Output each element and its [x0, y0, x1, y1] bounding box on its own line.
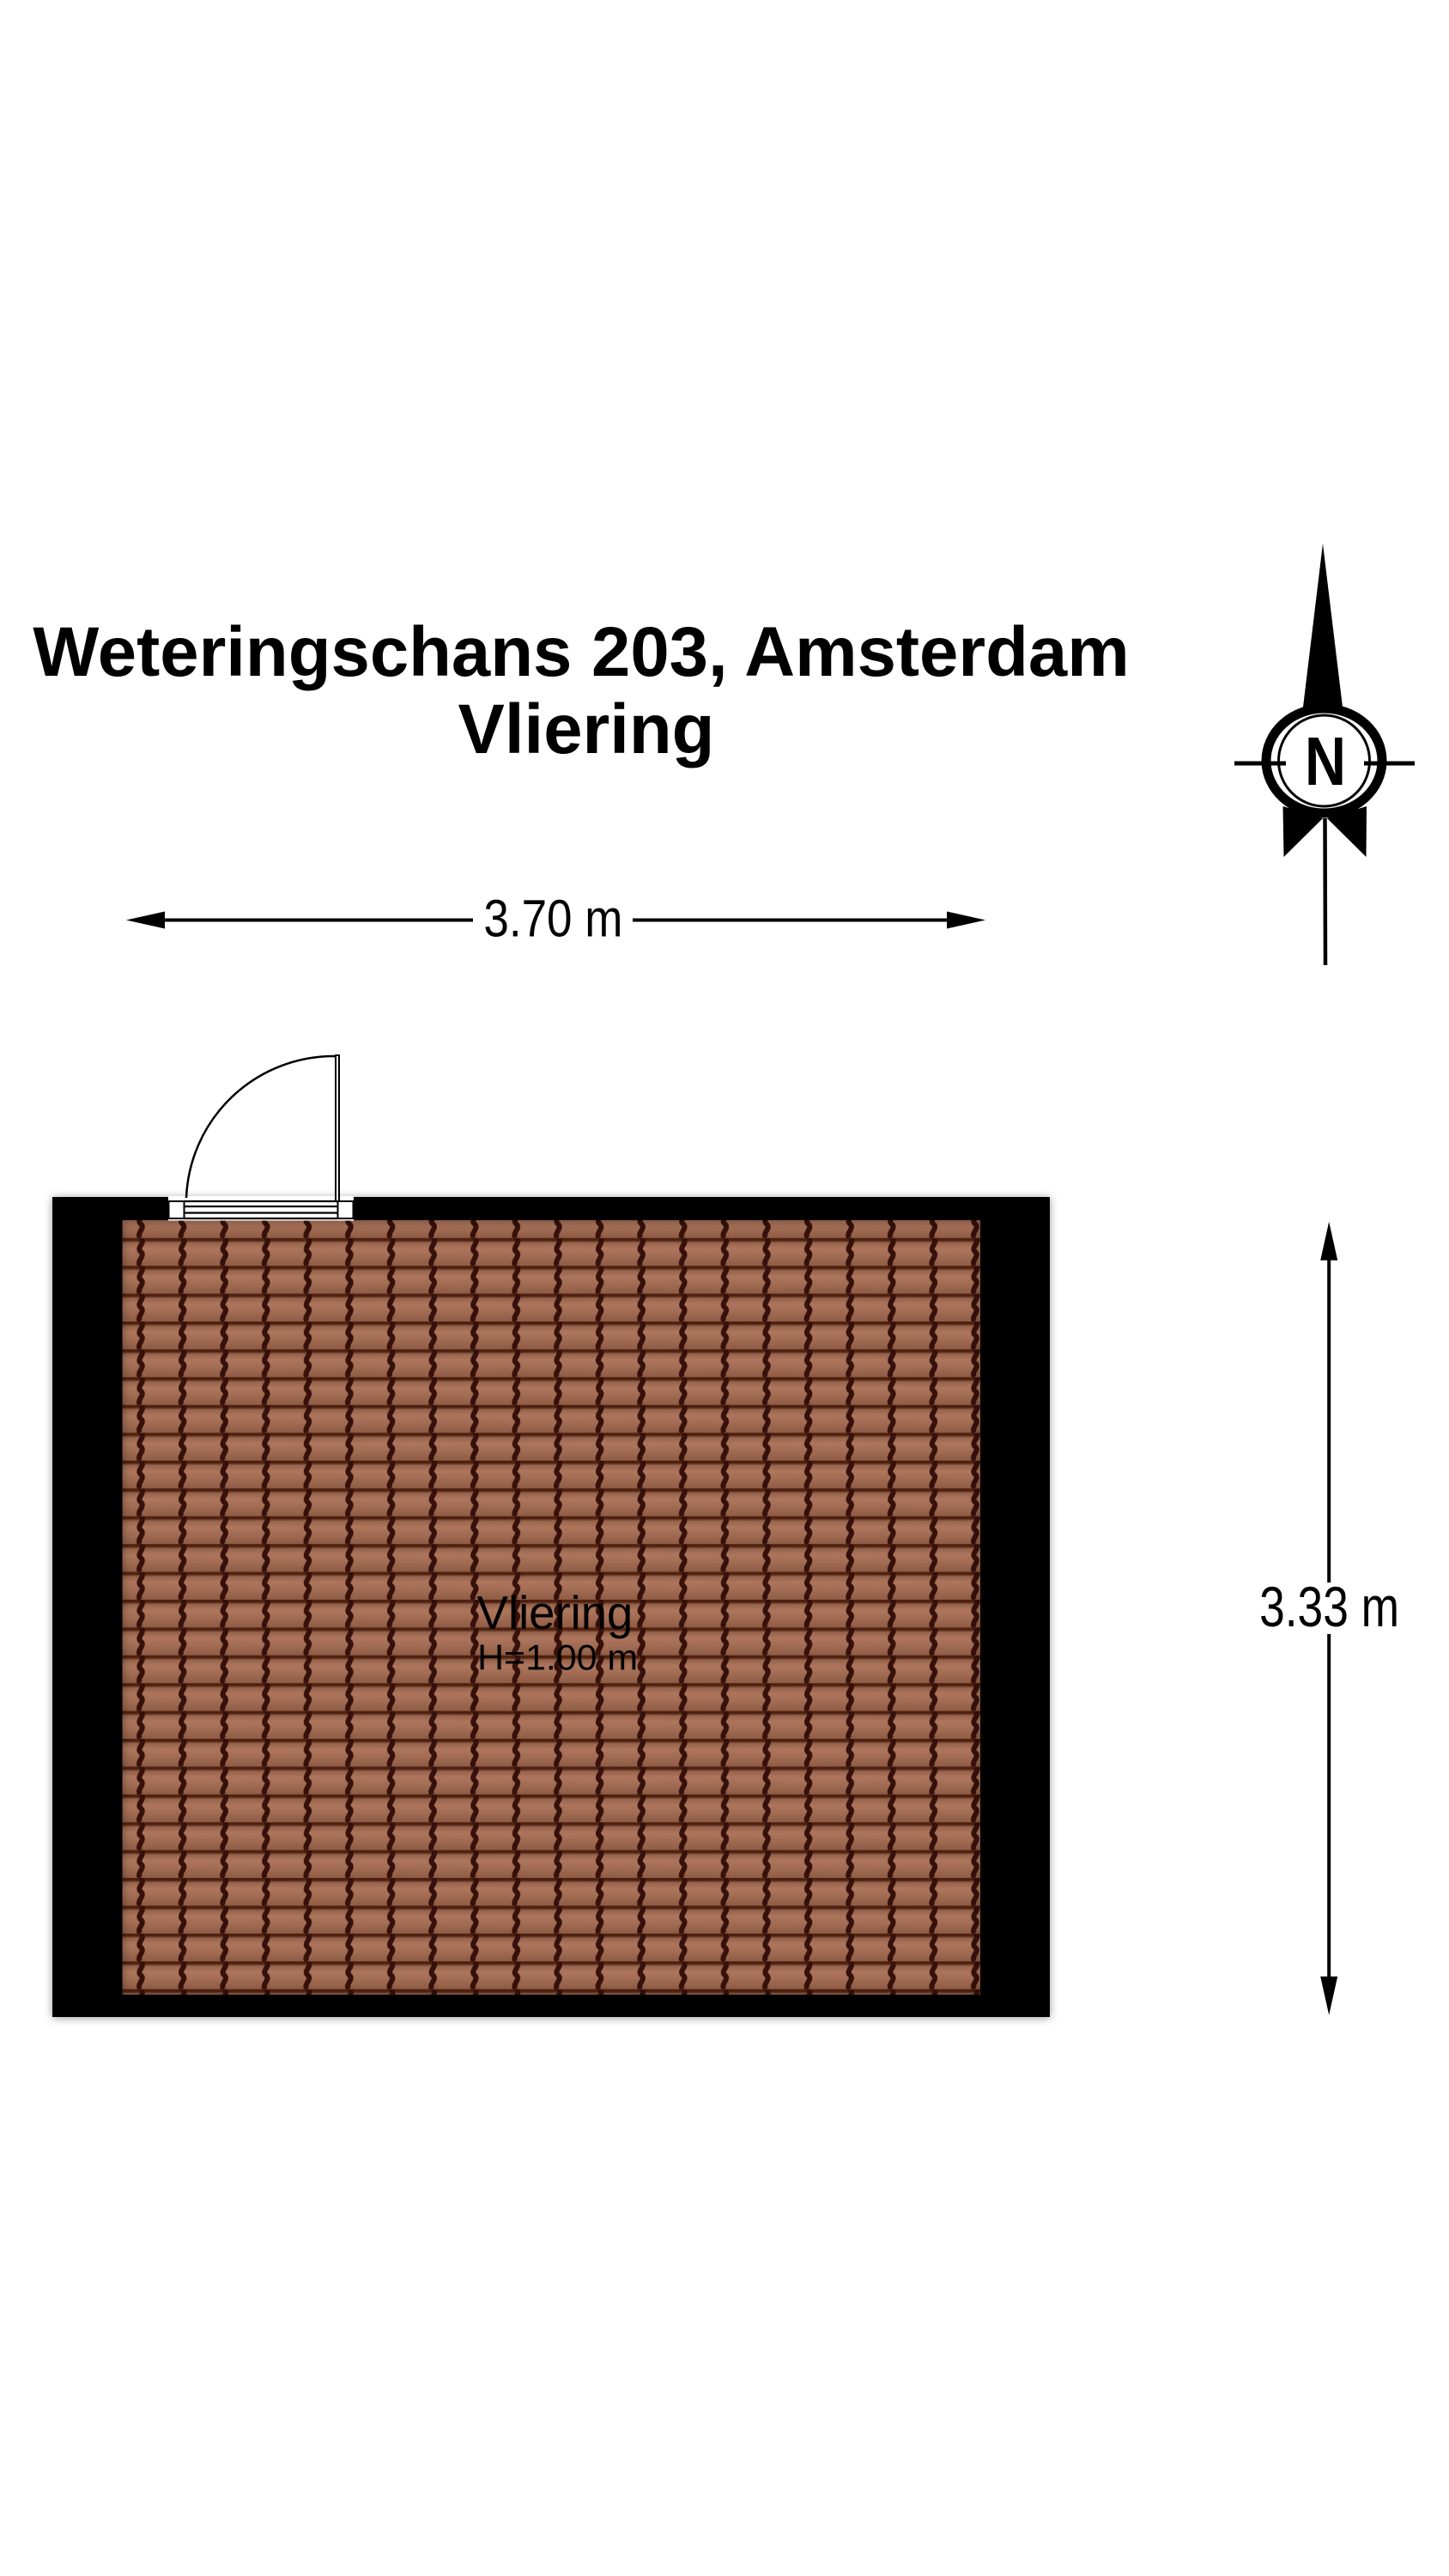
svg-text:3.70 m: 3.70 m: [483, 890, 622, 949]
svg-text:Vliering: Vliering: [458, 690, 715, 769]
svg-text:3.33 m: 3.33 m: [1259, 1575, 1399, 1638]
svg-text:N: N: [1305, 723, 1346, 799]
svg-text:H=1.00 m: H=1.00 m: [477, 1637, 638, 1677]
svg-text:Weteringschans 203, Amsterdam: Weteringschans 203, Amsterdam: [33, 613, 1129, 691]
svg-text:Vliering: Vliering: [477, 1587, 634, 1639]
